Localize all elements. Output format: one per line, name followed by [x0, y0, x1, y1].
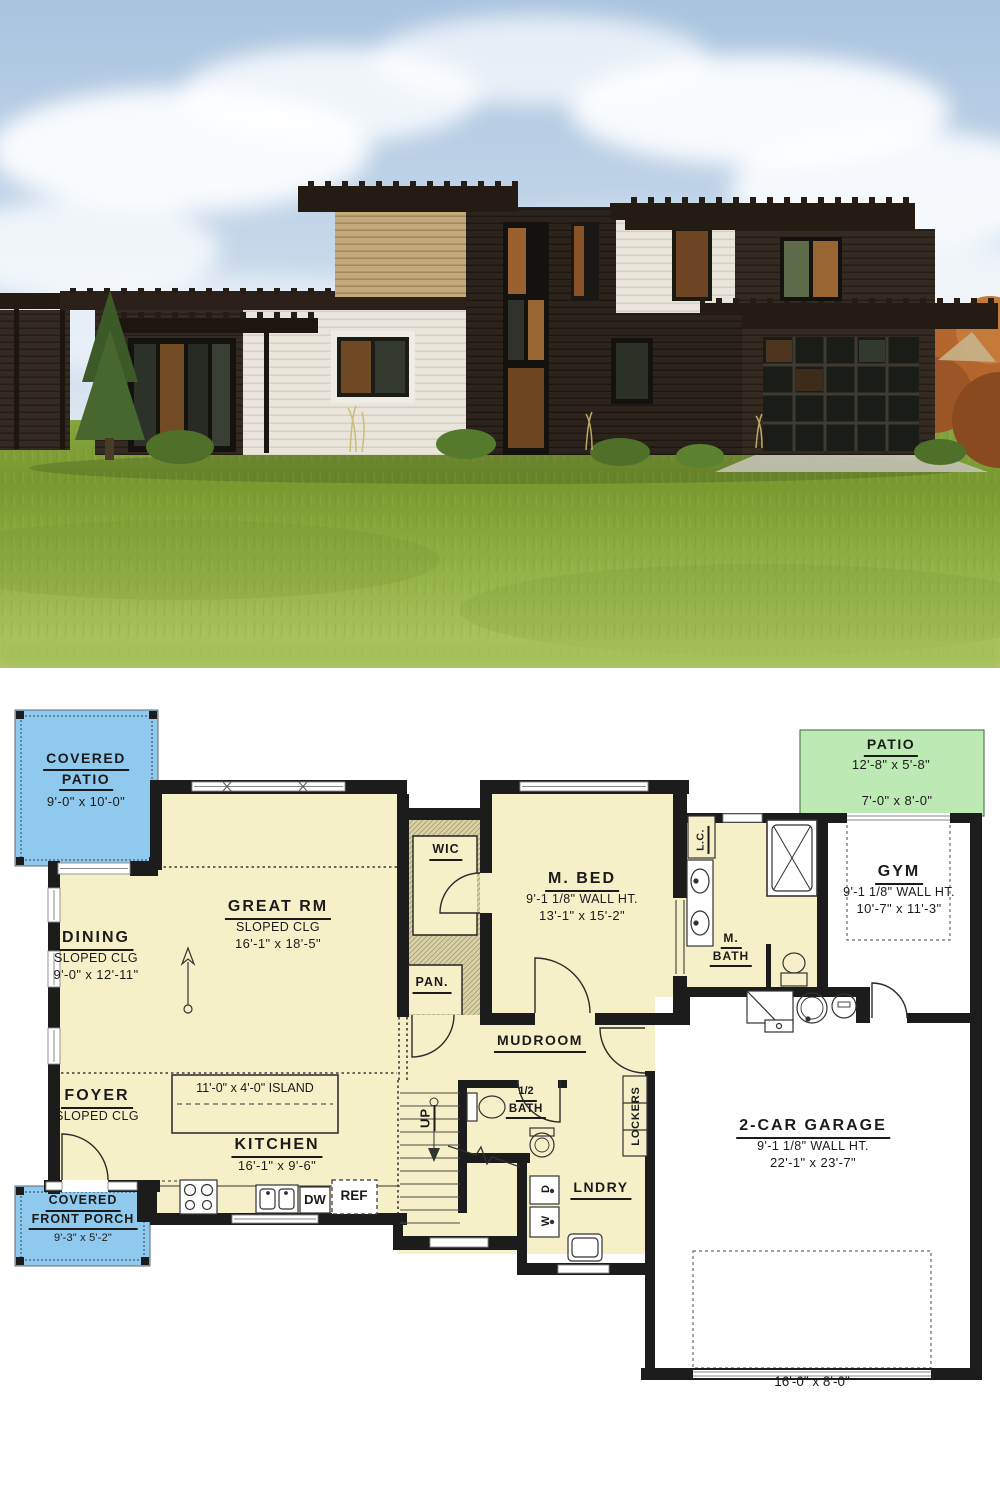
label-garage-door-dims: 16'-0" x 8'-0"	[774, 1374, 850, 1391]
room-label-m-bath: M. BATH	[710, 931, 752, 967]
label-refrigerator: REF	[341, 1186, 368, 1206]
exterior-render-art	[0, 0, 1000, 668]
room-label-foyer: FOYER SLOPED CLG	[55, 1086, 139, 1125]
label-washer: W	[536, 1216, 554, 1226]
room-label-laundry: LNDRY	[570, 1179, 631, 1200]
room-label-m-bed: M. BED 9'-1 1/8" WALL HT. 13'-1" x 15'-2…	[526, 869, 638, 924]
label-lockers: LOCKERS	[626, 1086, 644, 1145]
room-label-mudroom: MUDROOM	[494, 1032, 586, 1053]
left-wing-window	[331, 331, 415, 403]
label-patio-opening-dims: 7'-0" x 8'-0"	[862, 793, 933, 809]
label-dishwasher: DW	[304, 1190, 326, 1210]
room-label-patio: PATIO 12'-8" x 5'-8"	[852, 736, 930, 773]
room-label-front-porch: COVERED FRONT PORCH 9'-3" x 5'-2"	[29, 1193, 138, 1246]
room-label-gym: GYM 9'-1 1/8" WALL HT. 10'-7" x 11'-3"	[843, 862, 955, 917]
grass-blur-band	[0, 640, 1000, 668]
house-exterior-photo	[0, 0, 1000, 668]
room-label-linen-closet: L.C.	[691, 826, 710, 854]
room-label-dining: DINING SLOPED CLG 9'-0" x 12'-11"	[54, 928, 139, 983]
room-label-covered-patio: COVERED PATIO 9'-0" x 10'-0"	[43, 750, 129, 810]
first-floor-plan: COVERED PATIO 9'-0" x 10'-0" PATIO 12'-8…	[0, 668, 1000, 1500]
plan-labels: COVERED PATIO 9'-0" x 10'-0" PATIO 12'-8…	[0, 668, 1000, 1500]
room-label-pantry: PAN.	[413, 975, 452, 994]
room-label-half-bath: 1/2 BATH	[506, 1085, 546, 1119]
room-label-wic: WIC	[429, 842, 462, 861]
room-label-kitchen: KITCHEN 16'-1" x 9'-6"	[231, 1135, 322, 1174]
house-plan-pin: COVERED PATIO 9'-0" x 10'-0" PATIO 12'-8…	[0, 0, 1000, 1500]
label-dryer: D	[536, 1185, 554, 1193]
label-stairs-up: UP	[417, 1105, 436, 1131]
label-island-dims: 11'-0" x 4'-0" ISLAND	[196, 1081, 314, 1097]
garage-door	[742, 333, 934, 455]
right-upper-windows	[780, 237, 842, 301]
room-label-great-rm: GREAT RM SLOPED CLG 16'-1" x 18'-5"	[225, 897, 331, 952]
room-label-garage: 2-CAR GARAGE 9'-1 1/8" WALL HT. 22'-1" x…	[736, 1116, 890, 1171]
